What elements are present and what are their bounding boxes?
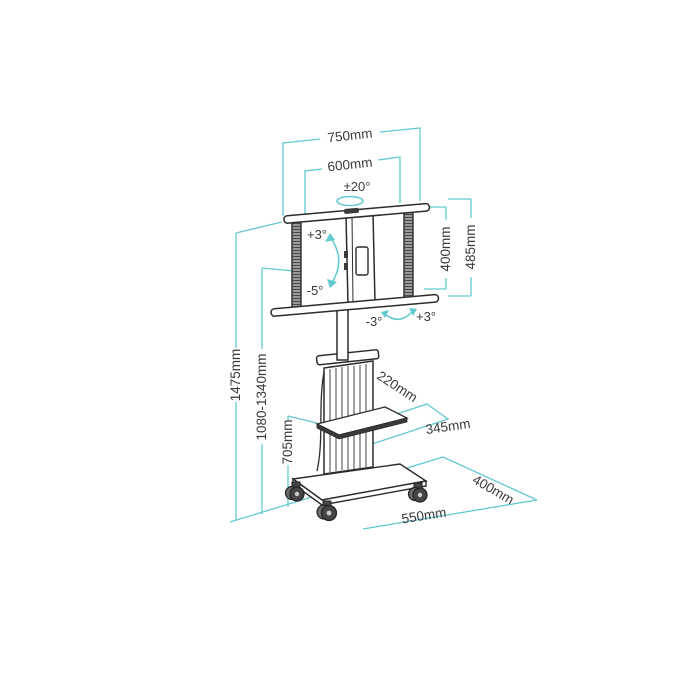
dim-label-total-height: 1475mm [228, 349, 243, 402]
dim-ext-1475 [236, 222, 282, 233]
dim-line-600-left [305, 169, 322, 214]
dim-label-vesa-height: 400mm [438, 226, 453, 271]
diagram-canvas: 750mm 600mm ±20° +3° -5° -3° +3° 400mm 4… [0, 0, 700, 700]
angle-label-tilt-up: +3° [307, 227, 327, 242]
dim-label-bracket-outer-width: 750mm [327, 126, 373, 146]
left-rail [292, 221, 301, 312]
dim-line-base-550 [363, 500, 537, 529]
dim-line-600-right [378, 157, 400, 203]
angle-label-level-left: -3° [366, 314, 383, 329]
support-pole [337, 306, 348, 360]
dim-label-shelf-depth: 220mm [374, 368, 420, 405]
level-arc [385, 311, 413, 319]
angle-label-level-right: +3° [416, 309, 436, 324]
tilt-arrow-down [327, 279, 337, 288]
angle-label-tilt-down: -5° [307, 283, 324, 298]
angle-label-swivel: ±20° [344, 179, 371, 194]
base-platform [293, 464, 426, 505]
tv-stand-dimension-drawing: 750mm 600mm ±20° +3° -5° -3° +3° 400mm 4… [0, 0, 700, 700]
cable-cover-curve [317, 372, 324, 471]
vesa-slot [356, 247, 368, 275]
tilt-arc [330, 237, 339, 284]
dim-label-shelf-width: 345mm [425, 416, 472, 437]
dim-label-bracket-inner-width: 600mm [327, 155, 373, 175]
dim-ext-1080 [262, 268, 294, 271]
tv-bracket [271, 203, 439, 360]
swivel-arc [337, 197, 363, 206]
dim-label-bracket-height: 485mm [463, 224, 478, 269]
dim-label-base-width: 550mm [401, 505, 448, 527]
plate-clip-top [344, 251, 348, 258]
right-rail [404, 207, 413, 298]
dim-line-750-left [283, 139, 320, 216]
plate-clip-bottom [344, 263, 348, 270]
dim-label-shelf-height: 705mm [280, 419, 295, 464]
dim-label-base-depth: 400mm [470, 472, 516, 507]
dim-label-screen-center-height: 1080-1340mm [254, 353, 269, 440]
